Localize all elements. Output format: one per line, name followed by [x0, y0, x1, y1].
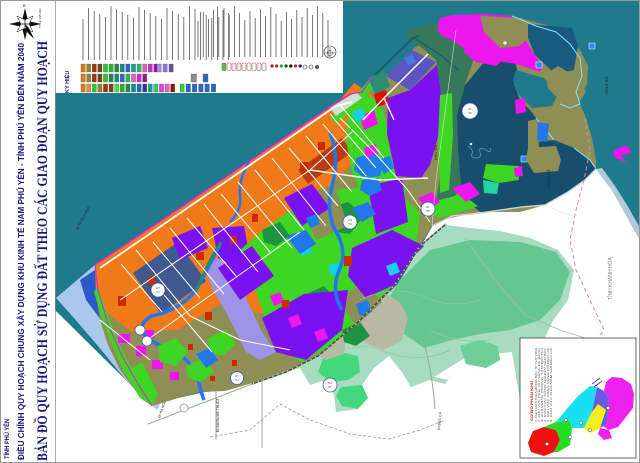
svg-text:04: 04	[235, 378, 239, 382]
svg-text:B: B	[23, 3, 26, 8]
svg-text:07: 07	[328, 385, 332, 389]
svg-text:ĐIỀU CHỈNH QUY HOẠCH CHUNG XÂY: ĐIỀU CHỈNH QUY HOẠCH CHUNG XÂY DỰNG KHU …	[16, 42, 26, 460]
svg-text:KÝ HIỆU: KÝ HIỆU	[63, 71, 71, 93]
svg-text:BẢN ĐỒ QUY HOẠCH SỬ DỤNG ĐẤT T: BẢN ĐỒ QUY HOẠCH SỬ DỤNG ĐẤT THEO CÁC GI…	[33, 41, 51, 461]
svg-text:02: 02	[156, 290, 160, 294]
svg-text:06: 06	[468, 111, 472, 115]
svg-text:03: 03	[348, 222, 352, 226]
svg-text:ĐI BUÔN MÊ THUỘT: ĐI BUÔN MÊ THUỘT	[215, 397, 220, 432]
svg-text:TỶ LỆ 1/25.000: TỶ LỆ 1/25.000	[37, 8, 42, 28]
svg-text:TỈNH KHÁNH HÒA: TỈNH KHÁNH HÒA	[607, 257, 614, 300]
svg-text:05: 05	[426, 209, 430, 213]
svg-text:KHU ĐÀ: KHU ĐÀ	[433, 145, 438, 160]
svg-text:VŨNG RÔ: VŨNG RÔ	[604, 76, 609, 95]
svg-text:TỈNH PHÚ YÊN: TỈNH PHÚ YÊN	[2, 419, 11, 459]
svg-text:VŨNG RÔ: VŨNG RÔ	[546, 169, 551, 188]
svg-text:SƠ ĐỒ PHÂN KHU: SƠ ĐỒ PHÂN KHU	[529, 380, 534, 421]
